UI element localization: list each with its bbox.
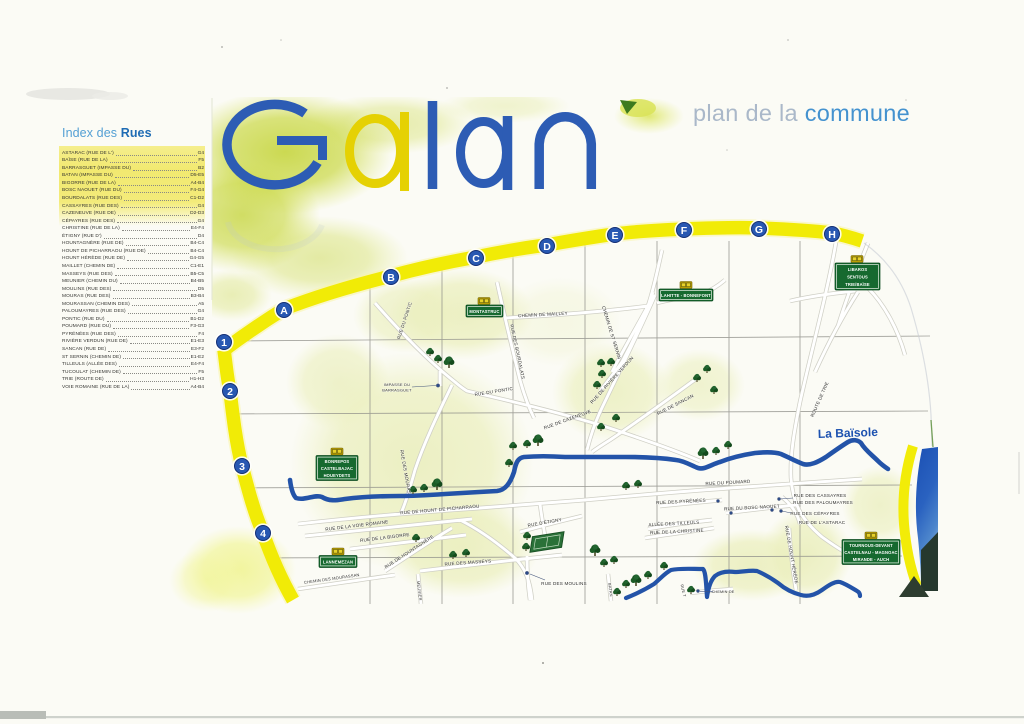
svg-text:TOURNOUS-DEVANT: TOURNOUS-DEVANT xyxy=(849,543,893,548)
svg-text:CHEMIN DE: CHEMIN DE xyxy=(711,590,734,594)
svg-text:RUE DES MOULINS: RUE DES MOULINS xyxy=(541,581,587,586)
svg-text:RUE DES CASSAYRES: RUE DES CASSAYRES xyxy=(794,493,847,498)
svg-text:B: B xyxy=(387,272,395,284)
svg-text:SENTOUS: SENTOUS xyxy=(847,275,868,280)
svg-text:BONREPOS: BONREPOS xyxy=(325,459,350,464)
svg-text:3: 3 xyxy=(239,461,245,473)
svg-text:MEUNIER: MEUNIER xyxy=(416,581,423,601)
svg-text:HOUEYDETS: HOUEYDETS xyxy=(324,473,351,478)
svg-text:RUE DES CÉPAYRES: RUE DES CÉPAYRES xyxy=(790,510,839,516)
svg-text:G: G xyxy=(755,224,763,236)
svg-text:D: D xyxy=(543,241,551,253)
svg-text:IMPASSE DU: IMPASSE DU xyxy=(384,382,410,387)
svg-text:TRIE/BAÏSE: TRIE/BAÏSE xyxy=(845,282,870,287)
svg-text:1: 1 xyxy=(221,337,227,349)
svg-text:A: A xyxy=(280,305,288,317)
svg-text:E: E xyxy=(611,230,618,242)
svg-text:ROUTE DE TRIE: ROUTE DE TRIE xyxy=(810,381,830,418)
svg-text:C: C xyxy=(472,253,480,265)
svg-text:4: 4 xyxy=(260,528,266,540)
svg-text:MIRANDE - AUCH: MIRANDE - AUCH xyxy=(853,557,890,562)
svg-text:H: H xyxy=(828,229,836,241)
svg-text:La Baïsole: La Baïsole xyxy=(818,425,879,441)
svg-text:RUE T: RUE T xyxy=(679,584,687,598)
svg-text:plan de la commune: plan de la commune xyxy=(693,100,910,126)
svg-text:CASTELNAU - MAGNOAC: CASTELNAU - MAGNOAC xyxy=(844,550,897,555)
svg-text:LAHITTE - BONNEFONT: LAHITTE - BONNEFONT xyxy=(661,293,711,298)
svg-text:BARRASGUET: BARRASGUET xyxy=(382,388,412,393)
svg-text:RUE DE L'ASTARAC: RUE DE L'ASTARAC xyxy=(799,520,846,525)
svg-text:2: 2 xyxy=(227,386,233,398)
svg-text:RUE DES PALOUMAYRES: RUE DES PALOUMAYRES xyxy=(793,500,853,505)
svg-text:LIBAROS: LIBAROS xyxy=(848,267,868,272)
svg-text:CASTELBAJAC: CASTELBAJAC xyxy=(321,466,353,471)
svg-text:MONTASTRUC: MONTASTRUC xyxy=(469,309,499,314)
svg-text:F: F xyxy=(681,225,688,237)
svg-text:LANNEMEZAN: LANNEMEZAN xyxy=(323,559,353,564)
